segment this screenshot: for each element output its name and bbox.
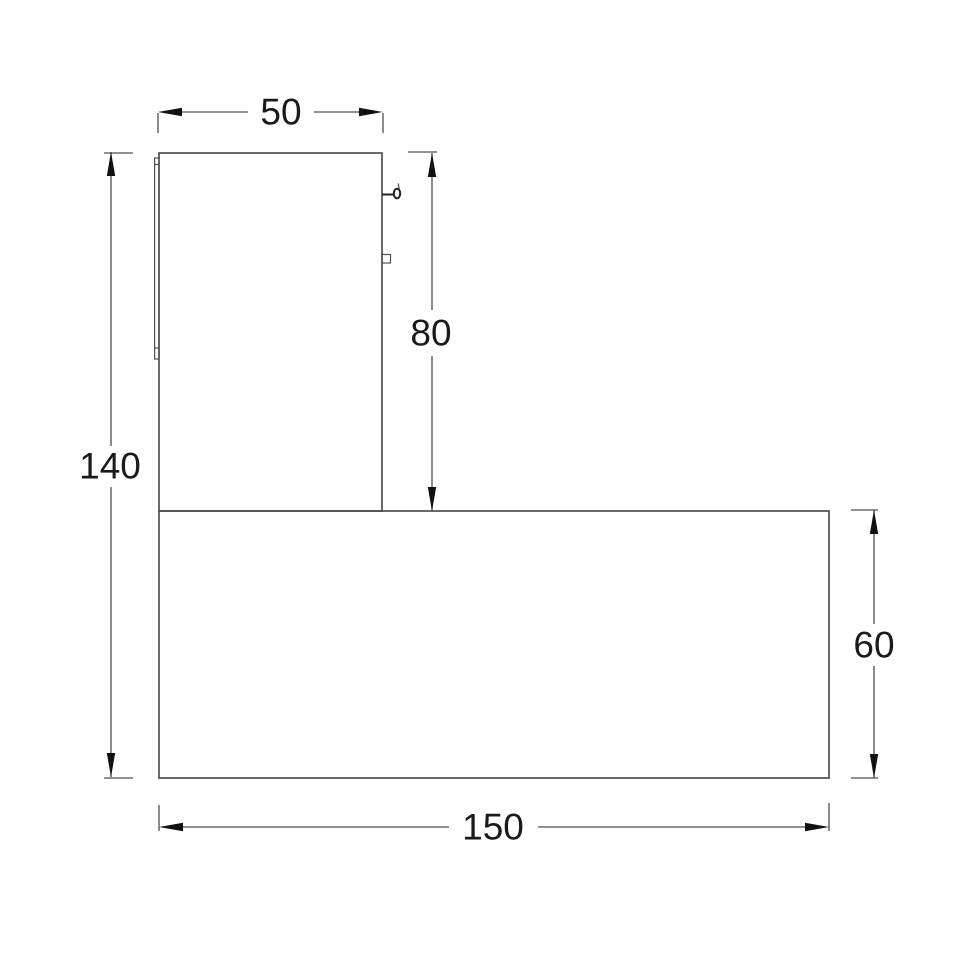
- dim-lower-right-height-label: 60: [853, 625, 894, 666]
- upper-section-outline: [159, 153, 382, 511]
- dim-left-height: 140: [79, 152, 141, 778]
- dim-top-width-label: 50: [260, 92, 301, 133]
- dim-top-width-arrow-right-icon: [359, 108, 383, 116]
- dim-upper-right-height-arrow-up-icon: [428, 153, 436, 177]
- dim-upper-right-height: 80: [408, 152, 452, 511]
- shape-outline: [155, 153, 829, 778]
- lower-section-outline: [159, 511, 829, 778]
- dim-lower-right-height-arrow-down-icon: [870, 754, 878, 778]
- key-bow: [394, 189, 400, 199]
- dim-lower-right-height-arrow-up-icon: [870, 510, 878, 534]
- dim-left-height-arrow-up-icon: [107, 152, 115, 176]
- dim-bottom-width-arrow-left-icon: [159, 823, 183, 831]
- dim-upper-right-height-label: 80: [410, 313, 451, 354]
- dim-top-width: 50: [158, 92, 383, 134]
- latch-detail-icon: [382, 255, 391, 264]
- technical-drawing: 50 140 80 60: [0, 0, 960, 960]
- key-lock-icon: [382, 184, 400, 199]
- dim-lower-right-height: 60: [851, 510, 895, 778]
- dim-left-height-arrow-down-icon: [107, 753, 115, 777]
- dim-bottom-width-arrow-right-icon: [805, 823, 829, 831]
- dim-top-width-arrow-left-icon: [158, 108, 182, 116]
- dim-bottom-width-label: 150: [462, 807, 524, 848]
- dim-left-height-label: 140: [79, 446, 141, 487]
- dim-bottom-width: 150: [159, 803, 829, 848]
- dim-upper-right-height-arrow-down-icon: [428, 487, 436, 511]
- drawing-canvas: 50 140 80 60: [0, 0, 960, 960]
